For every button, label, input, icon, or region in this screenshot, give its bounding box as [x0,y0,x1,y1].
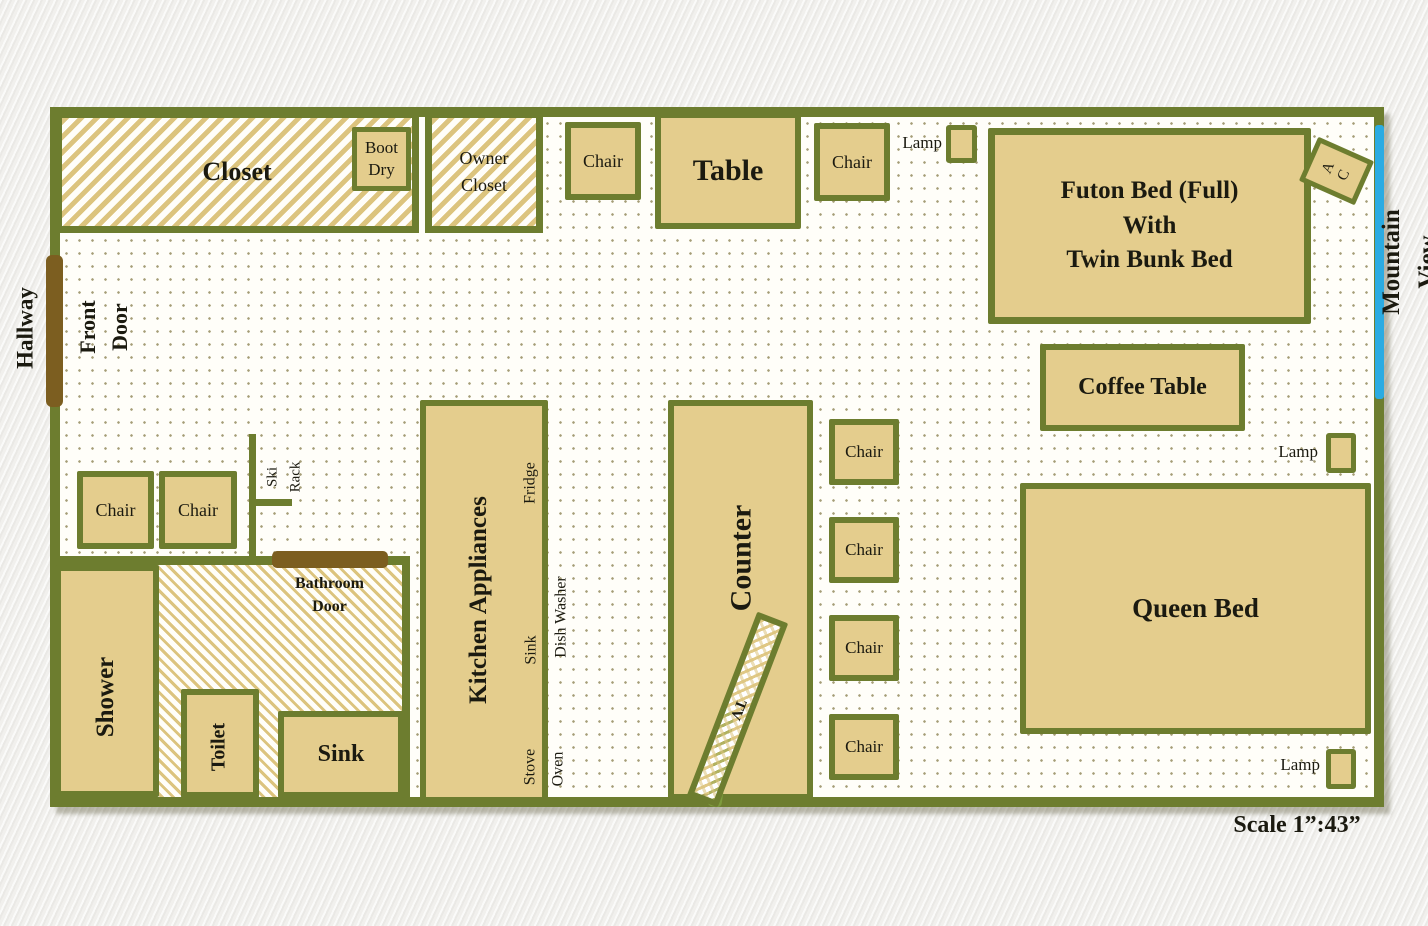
bathroom-sink: Sink [278,711,404,798]
mountain-view-label: Mountain View [1374,209,1428,315]
ski-rack-bar [254,499,292,506]
chair-label: Chair [845,540,883,560]
bathroom-door [272,551,388,568]
boot-dryer-label: Boot Dry [365,137,398,181]
chair-label: Chair [832,152,872,173]
scale-label: Scale 1”:43” [1197,812,1397,839]
lamp-label-bottom: Lamp [1254,755,1320,775]
boot-dryer: Boot Dry [352,127,411,191]
queen-bed-label: Queen Bed [1132,593,1259,624]
ski-rack-wall [249,434,256,562]
bathroom-sink-label: Sink [318,741,365,768]
owner-closet-label: Owner Closet [460,145,509,199]
chair-label: Chair [96,500,136,521]
counter-chair-4: Chair [829,714,899,780]
counter-label: Counter [719,505,763,612]
bathroom-door-label: Bathroom Door [262,572,397,618]
table-label: Table [693,154,764,188]
chair-label: Chair [845,737,883,757]
chair-label: Chair [178,500,218,521]
floor-plan: Closet Boot Dry Owner Closet Chair Table… [0,0,1428,926]
coffee-table-label: Coffee Table [1078,374,1207,401]
ski-rack-label: Ski Rack [262,462,307,493]
owner-closet: Owner Closet [425,111,543,233]
counter-chair-1: Chair [829,419,899,485]
futon-bed-label: Futon Bed (Full) With Twin Bunk Bed [1061,174,1239,278]
fridge-label: Fridge [518,462,541,504]
coffee-table: Coffee Table [1040,344,1245,431]
front-door [46,255,63,407]
chair-label: Chair [845,442,883,462]
dining-table: Table [655,112,801,229]
lounge-chair-1: Chair [77,471,154,549]
lamp-top [946,125,977,163]
ac-unit-label: A C [1319,159,1354,182]
counter-chair-2: Chair [829,517,899,583]
shower-label: Shower [88,657,124,738]
kitchen-sink-label: Sink [519,635,542,664]
toilet-label: Toilet [205,723,234,771]
hallway-label: Hallway [8,287,41,369]
tv-label: TV [726,697,749,723]
front-door-label: Front Door [72,300,136,353]
dining-chair-1: Chair [565,122,641,200]
futon-bed: Futon Bed (Full) With Twin Bunk Bed [988,128,1311,324]
lamp-bottom [1326,749,1356,789]
stove-label: Stove [518,749,541,785]
chair-label: Chair [845,638,883,658]
kitchen-appliances-label: Kitchen Appliances [461,496,497,704]
oven-label: Oven [546,752,569,787]
closet-label: Closet [202,157,271,187]
lounge-chair-2: Chair [159,471,237,549]
lamp-label-mid: Lamp [1252,442,1318,462]
counter-chair-3: Chair [829,615,899,681]
queen-bed: Queen Bed [1020,483,1371,734]
dish-washer-label: Dish Washer [549,576,572,658]
bathroom-wall-right [402,556,410,797]
lamp-label-top: Lamp [876,133,942,153]
chair-label: Chair [583,151,623,172]
lamp-mid [1326,433,1356,473]
